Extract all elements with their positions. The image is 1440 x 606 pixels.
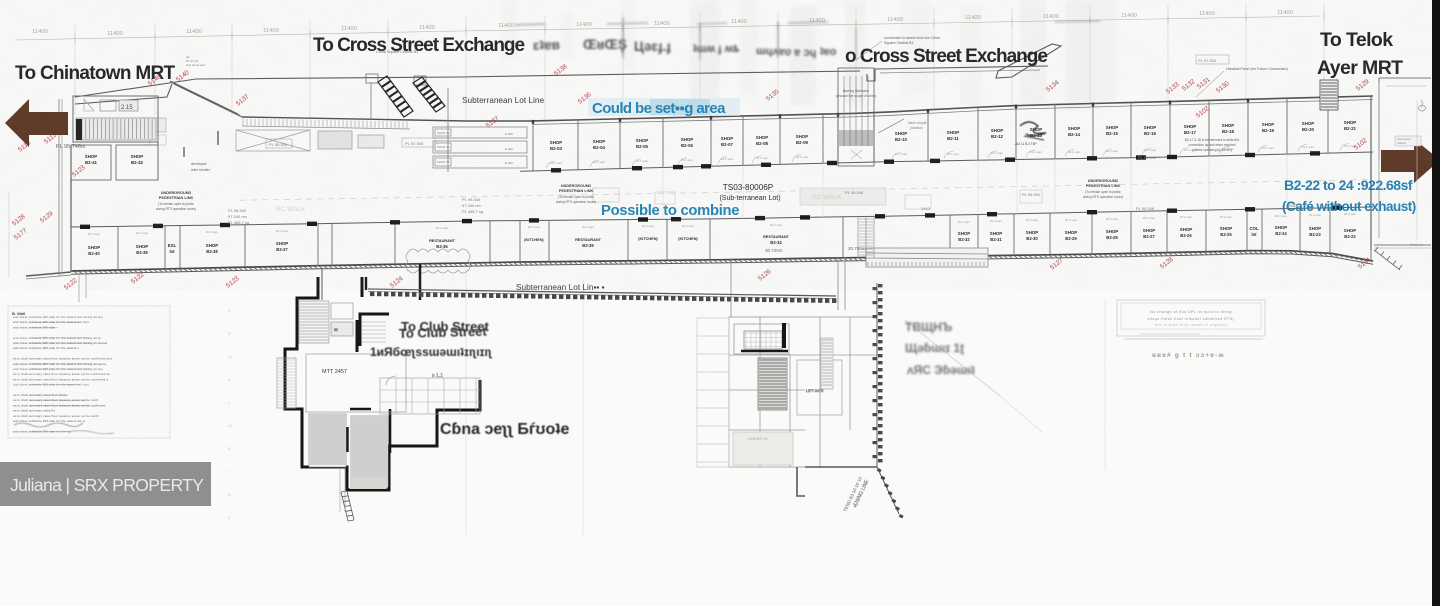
svg-text:Juliana | SRX PROPERTY: Juliana | SRX PROPERTY bbox=[10, 475, 204, 495]
